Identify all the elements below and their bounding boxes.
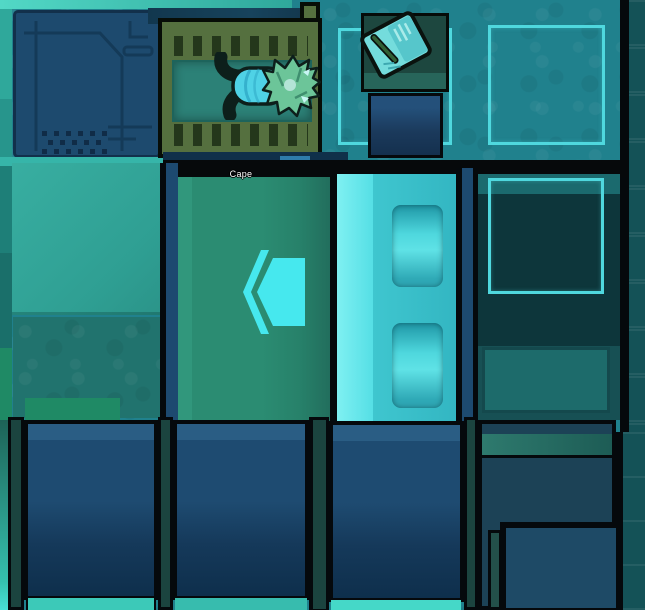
door-frame-line-left [330, 170, 337, 424]
left-teal-tile[interactable] [12, 163, 162, 315]
wall-pillar-1[interactable] [158, 417, 173, 610]
left-wall-strip [0, 9, 12, 99]
left-edge-tile-1 [0, 163, 12, 253]
right-room-lower-tile[interactable] [482, 347, 610, 413]
wall-pillar-2[interactable] [309, 417, 329, 610]
chevron-marker-icon[interactable] [243, 250, 305, 334]
tech-panel[interactable] [13, 10, 161, 158]
left-wall-navy-strip[interactable] [166, 163, 178, 421]
circuit-panel-icon [16, 13, 158, 155]
wall-block-d-teal-band [482, 434, 612, 458]
right-outer-wall-strip[interactable] [629, 0, 645, 434]
wall-block-a[interactable] [24, 420, 158, 600]
right-outer-wall-strip-lower[interactable] [623, 432, 645, 610]
pawn-name-label[interactable]: Cape [210, 169, 272, 179]
bed-slats-bottom [174, 124, 308, 146]
wall-block-c[interactable] [329, 421, 464, 602]
right-outer-wall-line [620, 0, 629, 434]
game-viewport: Cape [0, 0, 645, 610]
bottom-left-edge-strip [0, 420, 8, 610]
sliding-door[interactable] [373, 174, 456, 424]
wall-navy-strip-right-of-door[interactable] [462, 168, 473, 425]
nightstand-front-band [364, 73, 446, 89]
left-edge-tile-2 [0, 253, 12, 348]
bottom-teal-strip-c [331, 600, 461, 610]
wall-pillar-3[interactable] [464, 417, 478, 610]
door-window-bottom [392, 323, 443, 408]
left-wall-strip-2 [0, 99, 12, 163]
bottom-teal-strip-b [175, 598, 307, 610]
bottom-teal-strip-a [26, 598, 156, 610]
storage-zone-right-room[interactable] [488, 178, 604, 294]
door-window-top [392, 205, 443, 287]
sleeping-pawn[interactable] [203, 52, 321, 120]
left-green-band [25, 398, 120, 420]
pawn-face [284, 79, 296, 91]
crate-front[interactable] [500, 522, 622, 610]
stand-block[interactable] [368, 93, 443, 158]
storage-zone-topright[interactable] [488, 25, 605, 145]
left-edge-tile-green [0, 348, 12, 421]
wall-pillar-0[interactable] [8, 417, 24, 610]
door-highlight-strip [337, 174, 373, 424]
wall-block-b[interactable] [173, 420, 309, 600]
